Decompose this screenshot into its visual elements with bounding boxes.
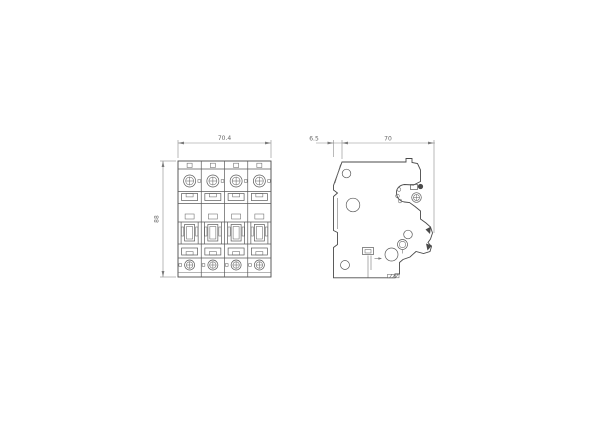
module-pole-1 <box>179 163 201 270</box>
module-pole-2 <box>202 163 224 270</box>
module-pole-4 <box>249 163 271 270</box>
module-pole-3 <box>225 163 247 270</box>
mcb-dimension-drawing: 70.4 88 <box>0 0 600 424</box>
front-view: 70.4 88 <box>154 135 272 277</box>
side-view: 6.5 70 <box>309 136 435 278</box>
dimension-drawing-canvas: 70.4 88 <box>0 0 600 424</box>
arrow-left-icon <box>178 142 184 145</box>
front-width-dimension: 70.4 <box>178 135 271 158</box>
arrow-right-icon <box>328 142 334 145</box>
housing-hole-middle <box>346 198 360 212</box>
side-front-offset-dimension-label: 6.5 <box>309 136 319 143</box>
arrow-right-icon <box>265 142 271 145</box>
arrow-down-icon <box>162 271 165 277</box>
front-width-dimension-label: 70.4 <box>218 135 232 142</box>
din-clip-detail <box>398 227 433 254</box>
housing-hole-bottom <box>341 261 350 270</box>
front-height-dimension-label: 88 <box>154 215 161 223</box>
side-profile-outline <box>334 159 433 278</box>
bottom-terminal-detail <box>363 248 400 278</box>
arrow-left-icon <box>342 142 348 145</box>
arrow-right-icon <box>428 142 434 145</box>
side-depth-dimension-label: 70 <box>384 136 392 143</box>
housing-hole-top <box>342 169 351 178</box>
arrow-up-icon <box>162 161 165 167</box>
front-height-dimension: 88 <box>154 161 177 277</box>
